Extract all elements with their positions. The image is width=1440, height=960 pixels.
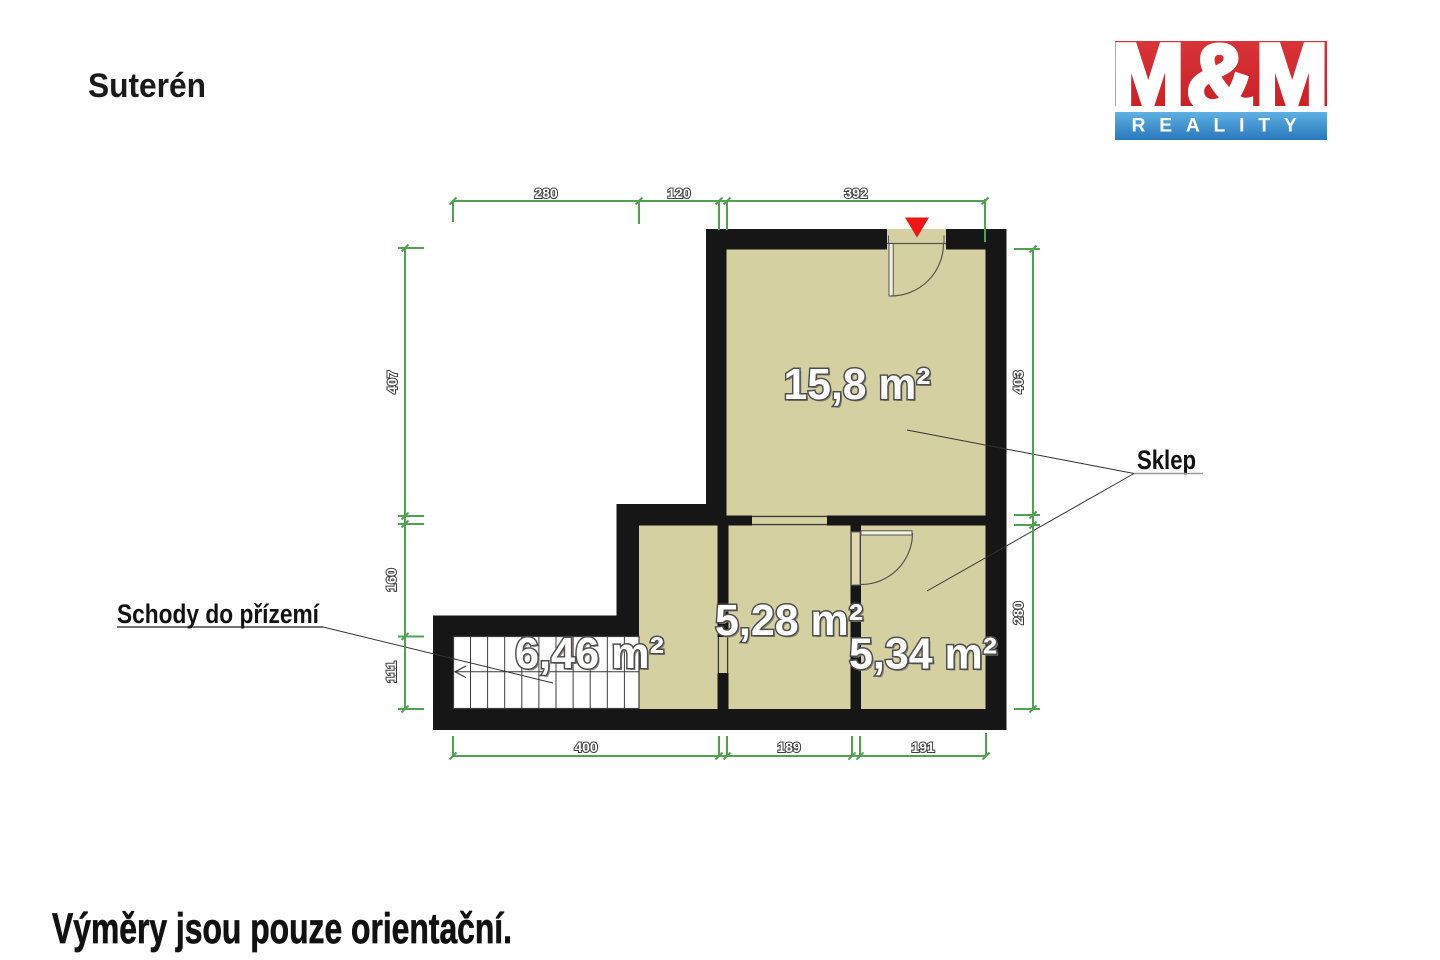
svg-text:REALITY: REALITY <box>1132 115 1311 137</box>
svg-text:Suterén: Suterén <box>88 67 206 105</box>
svg-text:189: 189 <box>777 739 801 755</box>
svg-text:400: 400 <box>574 739 598 755</box>
svg-text:5,34 m²: 5,34 m² <box>849 630 997 679</box>
svg-text:Schody do přízemí: Schody do přízemí <box>117 599 320 629</box>
svg-text:6,46 m²: 6,46 m² <box>515 629 664 678</box>
svg-text:191: 191 <box>911 739 935 755</box>
svg-text:15,8 m²: 15,8 m² <box>784 360 931 409</box>
svg-text:403: 403 <box>1010 370 1026 394</box>
svg-text:392: 392 <box>844 185 868 201</box>
svg-text:120: 120 <box>667 185 691 201</box>
svg-text:Sklep: Sklep <box>1137 445 1196 475</box>
svg-text:160: 160 <box>383 568 399 592</box>
svg-text:407: 407 <box>384 370 400 394</box>
svg-text:280: 280 <box>534 185 558 201</box>
svg-text:280: 280 <box>1010 601 1026 625</box>
svg-text:Výměry jsou pouze orientační.: Výměry jsou pouze orientační. <box>52 905 512 953</box>
svg-text:111: 111 <box>383 661 399 683</box>
svg-text:5,28 m²: 5,28 m² <box>715 596 863 645</box>
